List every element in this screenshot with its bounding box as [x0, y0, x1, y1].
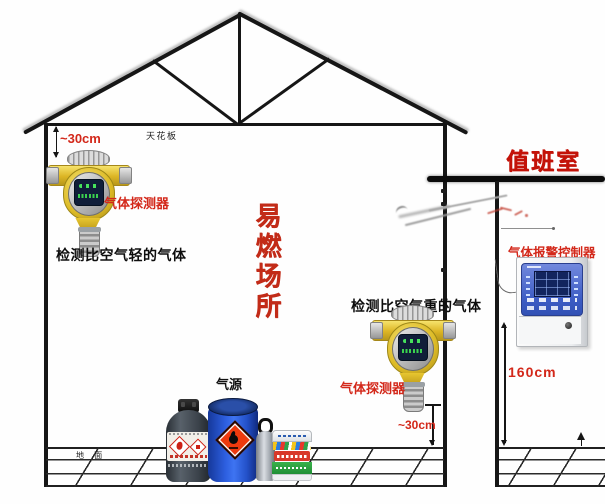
brand-mark: [527, 266, 541, 268]
roof-rafter-left: [23, 13, 241, 134]
arrow-down-icon: [501, 440, 507, 446]
can-red-label: [274, 451, 310, 461]
hazard-diamond-icon: [190, 439, 207, 456]
cable-clip: [441, 268, 446, 272]
flammable-area-label: 易燃场所: [252, 202, 282, 324]
ground-label: 地 面: [76, 450, 106, 461]
gas-source-label: 气源: [216, 374, 242, 393]
installation-diagram: 地 面 ~30cm 天花板 气体探测器 检测比空气轻的气体 易燃场所 检测比空气…: [0, 0, 605, 504]
can-lid: [272, 430, 312, 442]
label-fine-print: [170, 455, 207, 458]
controller-screen: [534, 271, 571, 297]
detector-bottom-label: 气体探测器: [340, 378, 405, 397]
duty-room-ceiling: [427, 176, 605, 182]
detector-display: [398, 334, 428, 361]
roof-strut-left: [152, 59, 239, 125]
diamond-fine-print: [229, 447, 238, 449]
conduit-cap-icon: [46, 167, 59, 184]
can-stripe-band: [273, 442, 311, 450]
status-led-column: [574, 272, 578, 296]
controller-front-panel: [521, 263, 583, 316]
roof-rafter-right: [237, 11, 468, 135]
flame-icon: [228, 432, 239, 444]
ceiling-line: [44, 123, 447, 126]
light-gas-note: 检测比空气轻的气体: [56, 245, 187, 265]
arrow-up-icon: [53, 126, 59, 132]
chemical-drum: [208, 398, 258, 482]
handwritten-mark: [487, 204, 533, 222]
ceiling-label: 天花板: [146, 129, 178, 142]
arrow-down-icon: [429, 440, 435, 446]
drum-lid: [208, 398, 258, 416]
roof-king-post: [238, 13, 241, 125]
cable-clip: [441, 202, 446, 206]
mount-height-label: 160cm: [508, 364, 557, 380]
bottom-clearance-label: ~30cm: [398, 418, 436, 432]
flammable-diamond-icon: [169, 436, 190, 457]
conduit-cap-icon: [370, 322, 383, 339]
detector-sensor-head: [403, 384, 424, 412]
lpg-cylinder: [166, 398, 211, 482]
can-green-band: [272, 462, 312, 474]
top-clearance-label: ~30cm: [60, 131, 101, 146]
door-lock-knob: [565, 322, 572, 329]
conduit-cap-icon: [119, 167, 132, 184]
roof-strut-right: [238, 57, 330, 124]
floor-grid-lines: [499, 447, 605, 487]
controller-buttons: [527, 298, 577, 311]
mount-height-line: [504, 325, 506, 443]
arrow-up-icon: [501, 322, 507, 328]
conduit-cap-icon: [443, 322, 456, 339]
duty-room-left-wall: [495, 181, 499, 487]
duty-room-floor: [499, 447, 605, 487]
solvent-can: [272, 430, 312, 481]
cylinder-hazard-label: [167, 432, 210, 461]
pointer-line: [501, 228, 554, 229]
detector-display: [74, 179, 104, 206]
cable-clip: [441, 189, 446, 193]
controller-door: [519, 316, 581, 344]
can-base: [272, 474, 312, 481]
cylinder-base-print: [168, 464, 209, 467]
floor-reference-stem: [581, 439, 583, 446]
detector-top-label: 气体探测器: [104, 193, 169, 212]
cable-bundle: [405, 208, 471, 226]
status-led-column: [526, 272, 530, 296]
duty-room-title: 值班室: [506, 142, 581, 176]
gas-alarm-controller: [516, 257, 588, 347]
